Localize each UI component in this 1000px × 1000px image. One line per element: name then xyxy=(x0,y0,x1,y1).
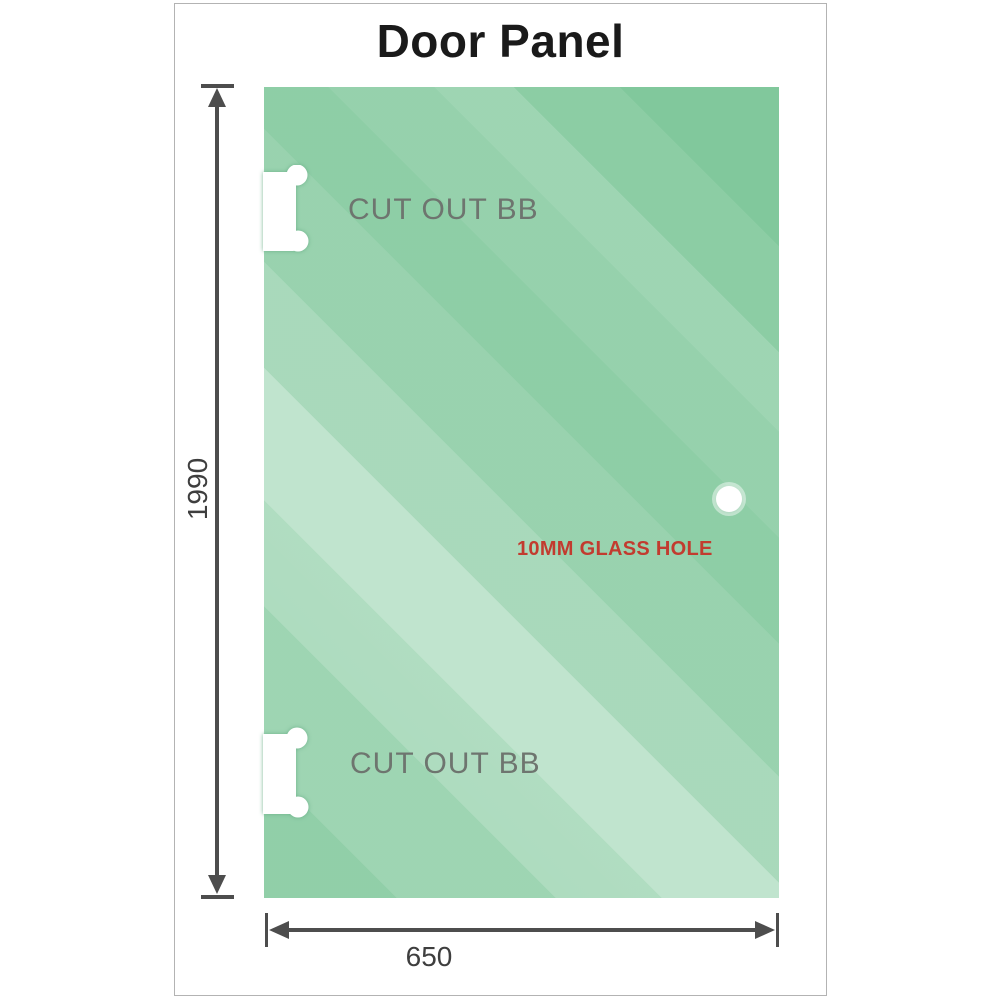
glass-hole-label: 10MM GLASS HOLE xyxy=(517,538,713,561)
diagram-canvas: Door Panel CUT OUT BB CUT OUT BB 10MM GL… xyxy=(0,0,1000,1000)
cutout-bottom-label: CUT OUT BB xyxy=(350,747,541,781)
width-dim-label: 650 xyxy=(406,941,453,973)
cutout-top-label: CUT OUT BB xyxy=(348,193,539,227)
page-title: Door Panel xyxy=(175,14,826,68)
width-dim-tick-right xyxy=(776,913,779,947)
arrow-left-icon xyxy=(269,921,289,939)
cutout-bottom-notch xyxy=(263,727,313,827)
height-dim-tick-bottom xyxy=(201,895,234,899)
arrow-right-icon xyxy=(755,921,775,939)
arrow-down-icon xyxy=(208,875,226,894)
width-dim-line xyxy=(288,928,756,932)
cutout-top-notch xyxy=(263,165,313,265)
drawing-frame: Door Panel CUT OUT BB CUT OUT BB 10MM GL… xyxy=(174,3,827,996)
height-dim-label: 1990 xyxy=(182,458,214,520)
height-dim-line xyxy=(215,105,219,876)
glass-hole xyxy=(716,486,742,512)
width-dim-tick-left xyxy=(265,913,268,947)
glass-panel: CUT OUT BB CUT OUT BB 10MM GLASS HOLE xyxy=(264,87,779,898)
